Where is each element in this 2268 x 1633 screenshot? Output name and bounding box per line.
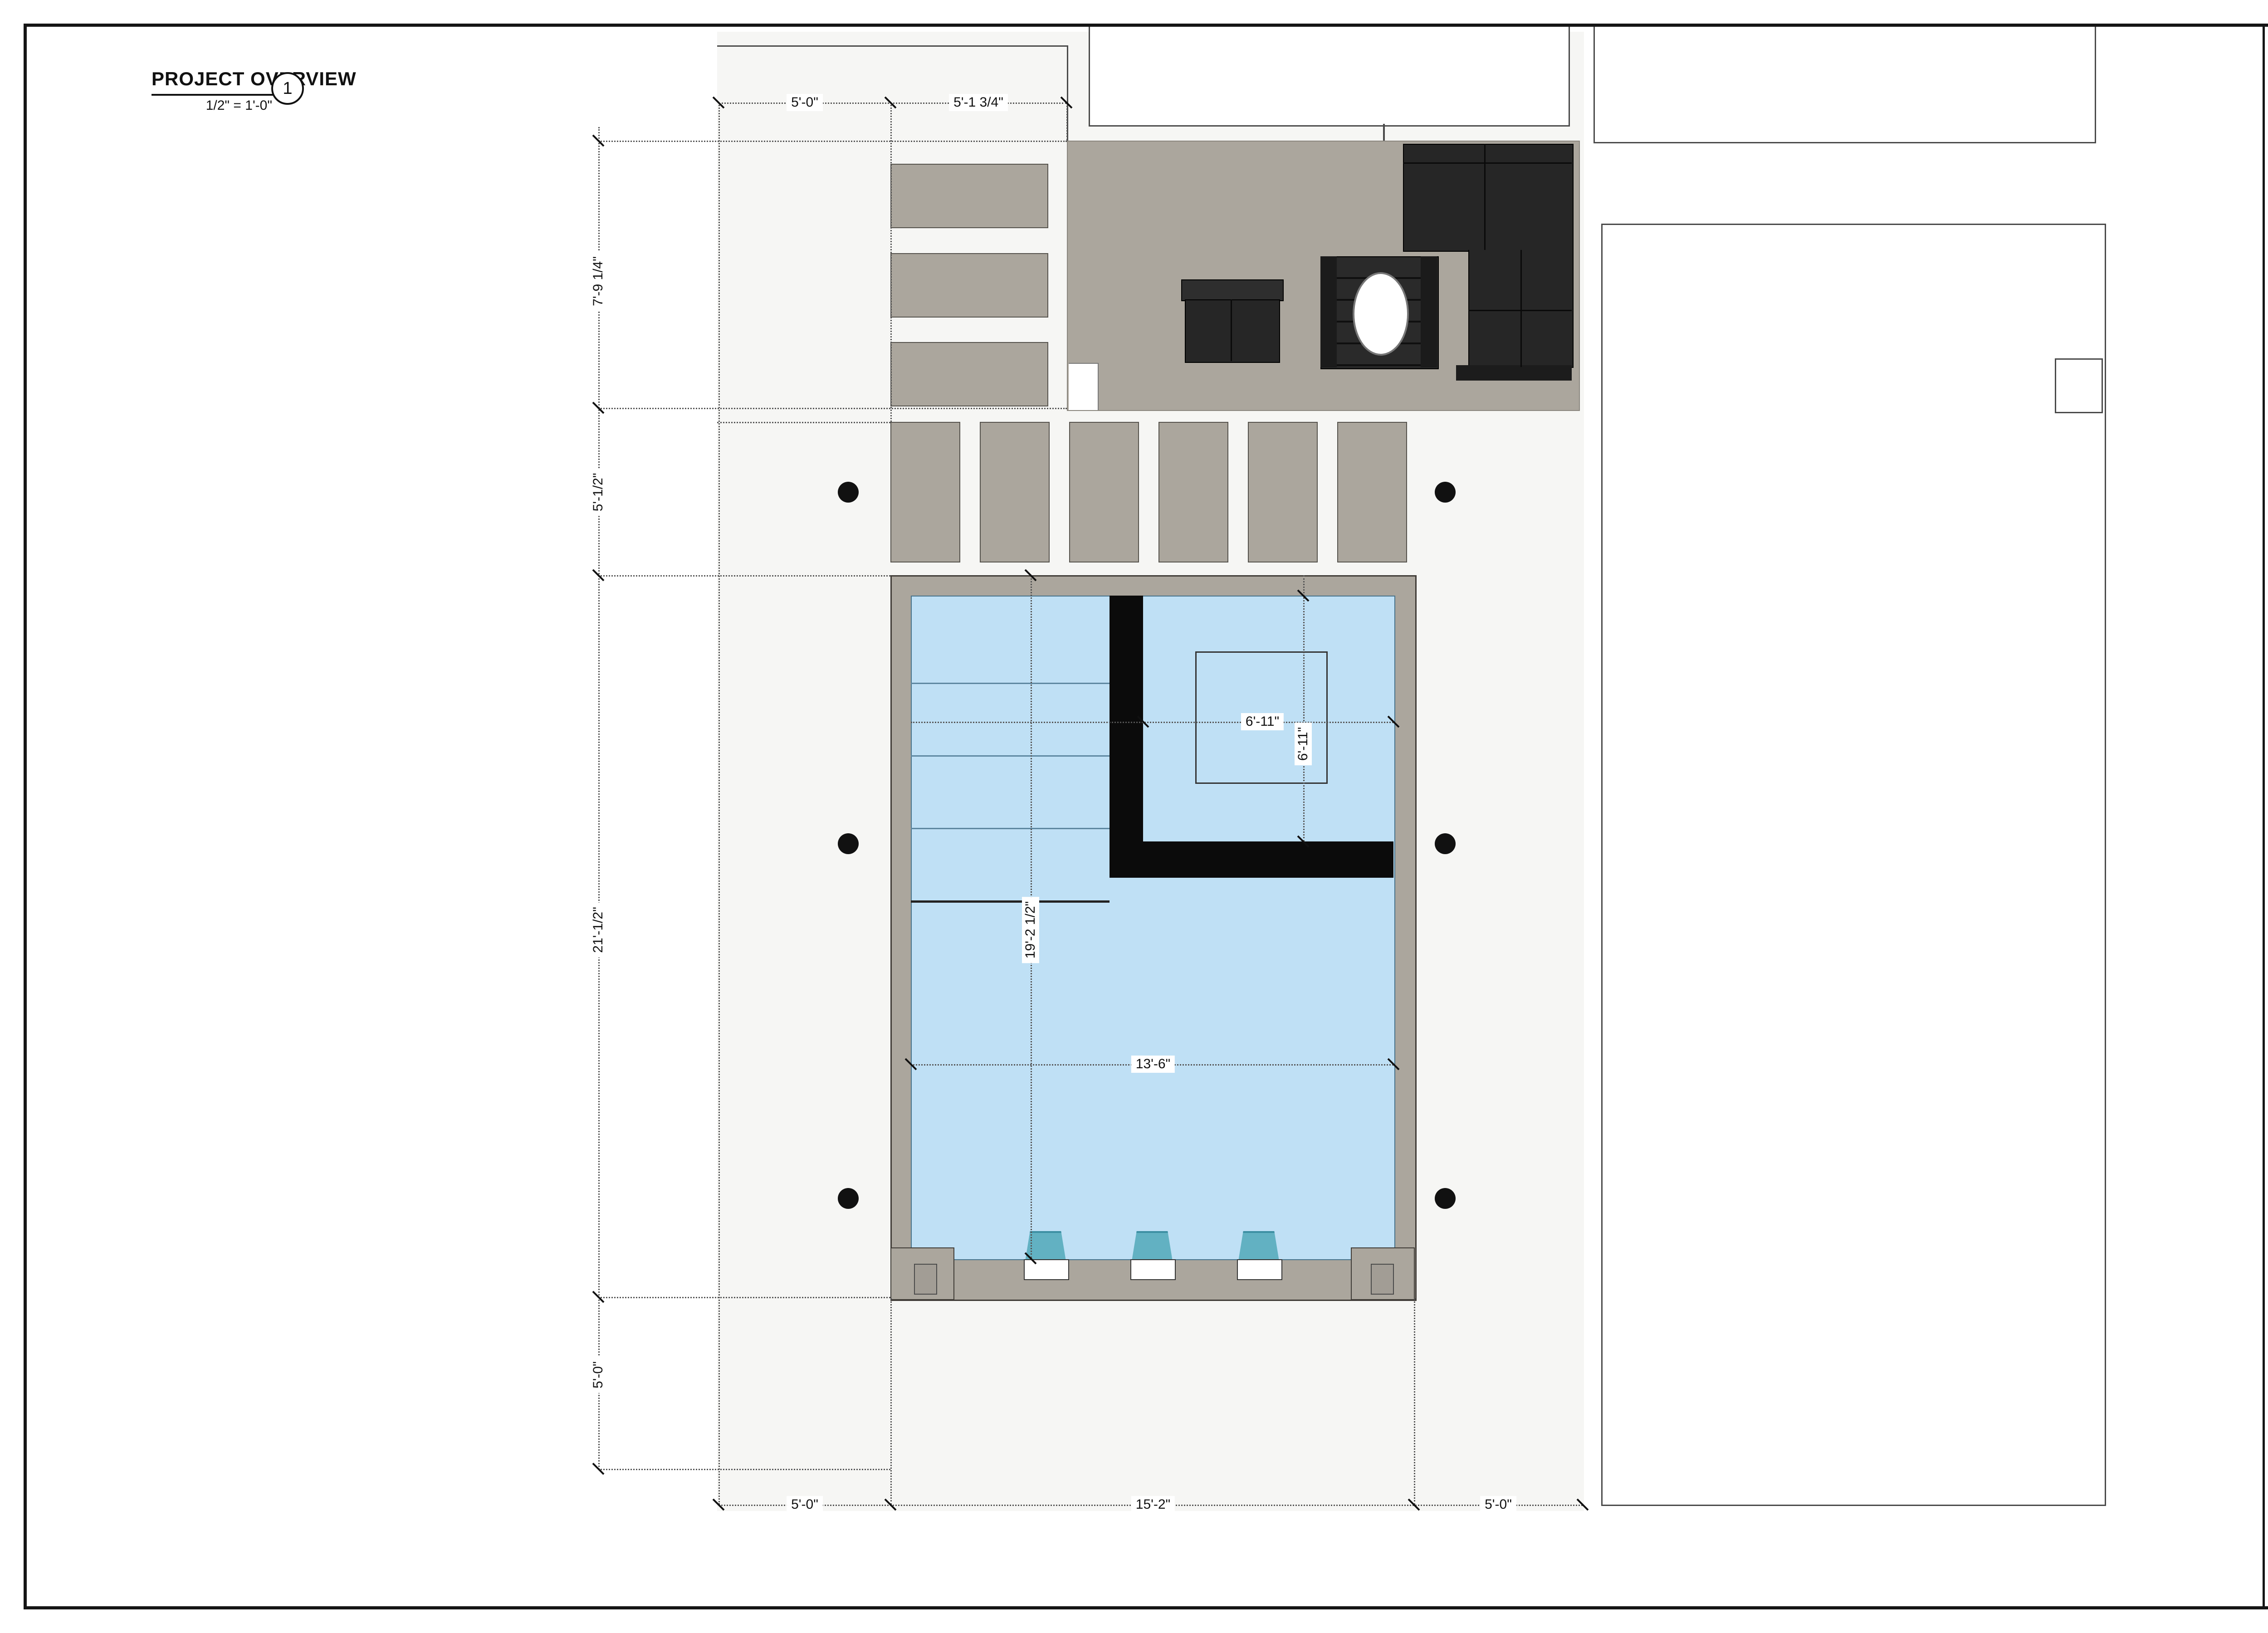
dim-label: 5'-0" xyxy=(590,1357,607,1393)
dim-label: 6'-11" xyxy=(1295,723,1312,765)
dim-label: 5'-0" xyxy=(1480,1496,1516,1513)
drawing-sheet: 5'-0" 5'-1 3/4" 7'-9 1/4" 5'-1/2" 21'-1/… xyxy=(0,0,2268,1633)
title-panel-divider xyxy=(2263,24,2265,1606)
dim-label: 5'-1 3/4" xyxy=(949,94,1008,111)
dim-label: 5'-1/2" xyxy=(590,469,607,516)
dim-label: 15'-2" xyxy=(1131,1496,1175,1513)
dim-label: 19'-2 1/2" xyxy=(1022,897,1039,963)
sheet-border xyxy=(24,24,2268,1609)
dim-label: 7'-9 1/4" xyxy=(590,252,607,311)
dim-label: 21'-1/2" xyxy=(590,902,607,957)
dim-label: 6'-11" xyxy=(1241,713,1284,730)
dim-line xyxy=(911,722,1393,723)
dim-label: 5'-0" xyxy=(787,1496,823,1513)
dim-line xyxy=(1303,575,1305,841)
dim-label: 5'-0" xyxy=(787,94,823,111)
dim-label: 13'-6" xyxy=(1131,1056,1175,1073)
